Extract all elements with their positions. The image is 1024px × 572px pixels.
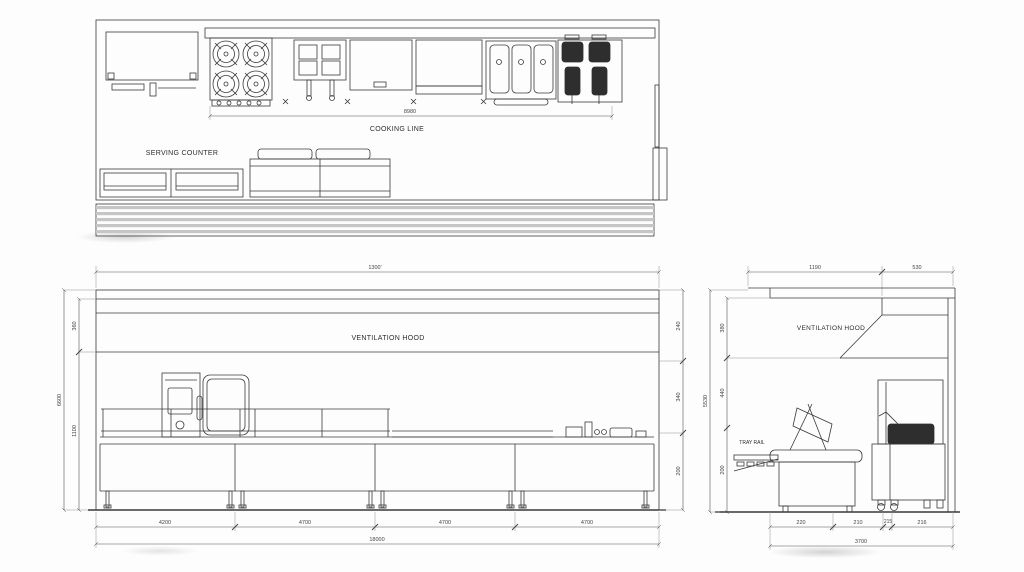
plan-equipment-flattop — [106, 32, 198, 96]
plan-equipment-boiling-unit — [294, 40, 346, 101]
plan-equipment-bain-marie — [486, 41, 556, 105]
side-left-dimensions: 5530 380 440 200 — [703, 290, 840, 512]
front-bottom-seg-1: 4200 — [159, 520, 171, 526]
plan-equipment-chargrill — [416, 40, 482, 94]
side-dim-left-top: 380 — [720, 323, 726, 332]
front-room-outline — [96, 290, 659, 510]
front-bottom-total: 18000 — [369, 537, 384, 543]
front-right-dimensions: 240 340 200 — [659, 290, 686, 510]
front-dim-right-top: 240 — [676, 321, 682, 330]
cooking-line-label: COOKING LINE — [370, 126, 424, 133]
front-top-dim-value: 1300' — [368, 265, 381, 271]
side-elevation: 1190 530 VENTILATION HOOD TRAY RAIL — [703, 265, 960, 550]
plan-side-panel — [653, 85, 667, 200]
side-bottom-seg-4: 216 — [917, 520, 926, 526]
side-top-dim-left: 1190 — [809, 265, 821, 271]
side-bottom-seg-3: 215 — [884, 519, 893, 525]
side-top-dim-right: 530 — [912, 265, 921, 271]
plan-equipment-griddle — [350, 40, 412, 90]
kitchen-technical-drawing: 8980 COOKING LINE SERVING COUNTER — [0, 0, 1024, 572]
front-bottom-seg-4: 4700 — [581, 520, 593, 526]
plan-equipment-range — [210, 38, 272, 106]
front-bottom-seg-3: 4700 — [439, 520, 451, 526]
front-counter-base — [100, 437, 654, 508]
side-fryer-unit — [872, 380, 945, 511]
front-dim-counter-height: 1100 — [72, 425, 78, 437]
side-top-dimensions: 1190 530 — [748, 265, 953, 296]
plan-view: 8980 COOKING LINE SERVING COUNTER — [96, 20, 667, 236]
front-bottom-dimensions: 4200 4700 4700 4700 18000 — [96, 512, 659, 548]
front-dim-total-height: 6600 — [57, 394, 63, 406]
front-left-dimensions: 6600 360 1100 — [57, 290, 96, 510]
side-bottom-seg-2: 210 — [853, 520, 862, 526]
front-top-dimension: 1300' — [96, 265, 659, 288]
plan-serving-counter-middle — [250, 149, 390, 197]
side-dim-left-bottom: 200 — [720, 465, 726, 474]
serving-counter-label: SERVING COUNTER — [146, 150, 218, 157]
front-counter-items — [566, 422, 646, 437]
plan-floor-deck — [96, 204, 654, 236]
plan-gas-connection-marks — [283, 99, 486, 104]
cooking-line-dim-value: 8980 — [404, 109, 416, 115]
plan-equipment-fryers — [558, 35, 622, 104]
side-bottom-total: 3700 — [855, 539, 867, 545]
side-dim-left-mid: 440 — [720, 388, 726, 397]
front-ventilation-hood: VENTILATION HOOD — [96, 313, 659, 352]
side-ventilation-hood: VENTILATION HOOD — [797, 298, 948, 358]
side-bottom-seg-1: 220 — [796, 520, 805, 526]
side-hood-label: VENTILATION HOOD — [797, 325, 865, 332]
tray-rail-label: TRAY RAIL — [739, 440, 765, 446]
front-dim-right-mid: 340 — [676, 392, 682, 401]
side-bottom-dimensions: 220 210 215 216 3700 — [770, 512, 953, 550]
plan-wall-hatch — [205, 28, 655, 38]
front-dim-right-bottom: 200 — [676, 466, 682, 475]
front-dim-hood-height: 360 — [72, 321, 78, 330]
kitchen-drawing-canvas: 8980 COOKING LINE SERVING COUNTER — [0, 0, 1024, 572]
front-hood-label: VENTILATION HOOD — [351, 335, 424, 342]
front-combi-oven — [162, 373, 249, 437]
front-elevation: 1300' VENTILATION HOOD — [57, 265, 686, 548]
plan-serving-counter-left — [100, 169, 243, 197]
cooking-line-dimension: 8980 COOKING LINE — [210, 106, 612, 133]
side-dim-total-height: 5530 — [703, 395, 709, 407]
side-tray-rail: TRAY RAIL — [734, 440, 778, 471]
front-bottom-seg-2: 4700 — [299, 520, 311, 526]
side-serving-counter — [770, 404, 862, 512]
